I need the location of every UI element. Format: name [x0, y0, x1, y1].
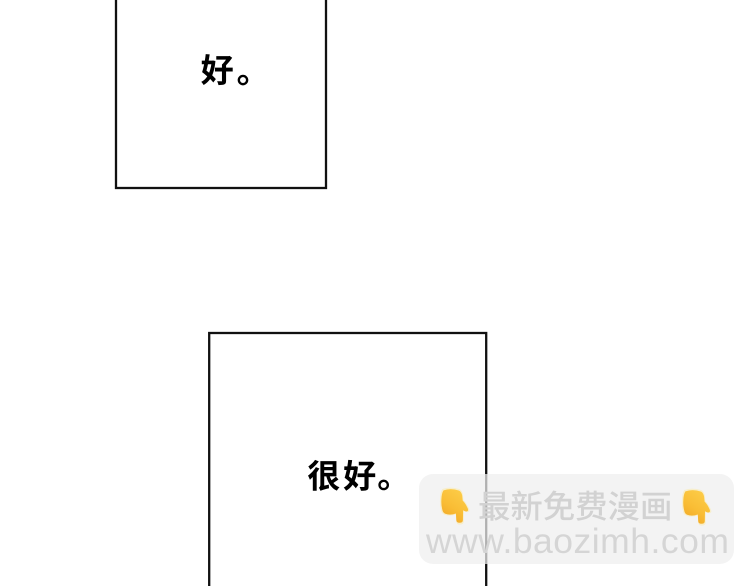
svg-text:www.baozimh.com: www.baozimh.com: [425, 521, 729, 561]
